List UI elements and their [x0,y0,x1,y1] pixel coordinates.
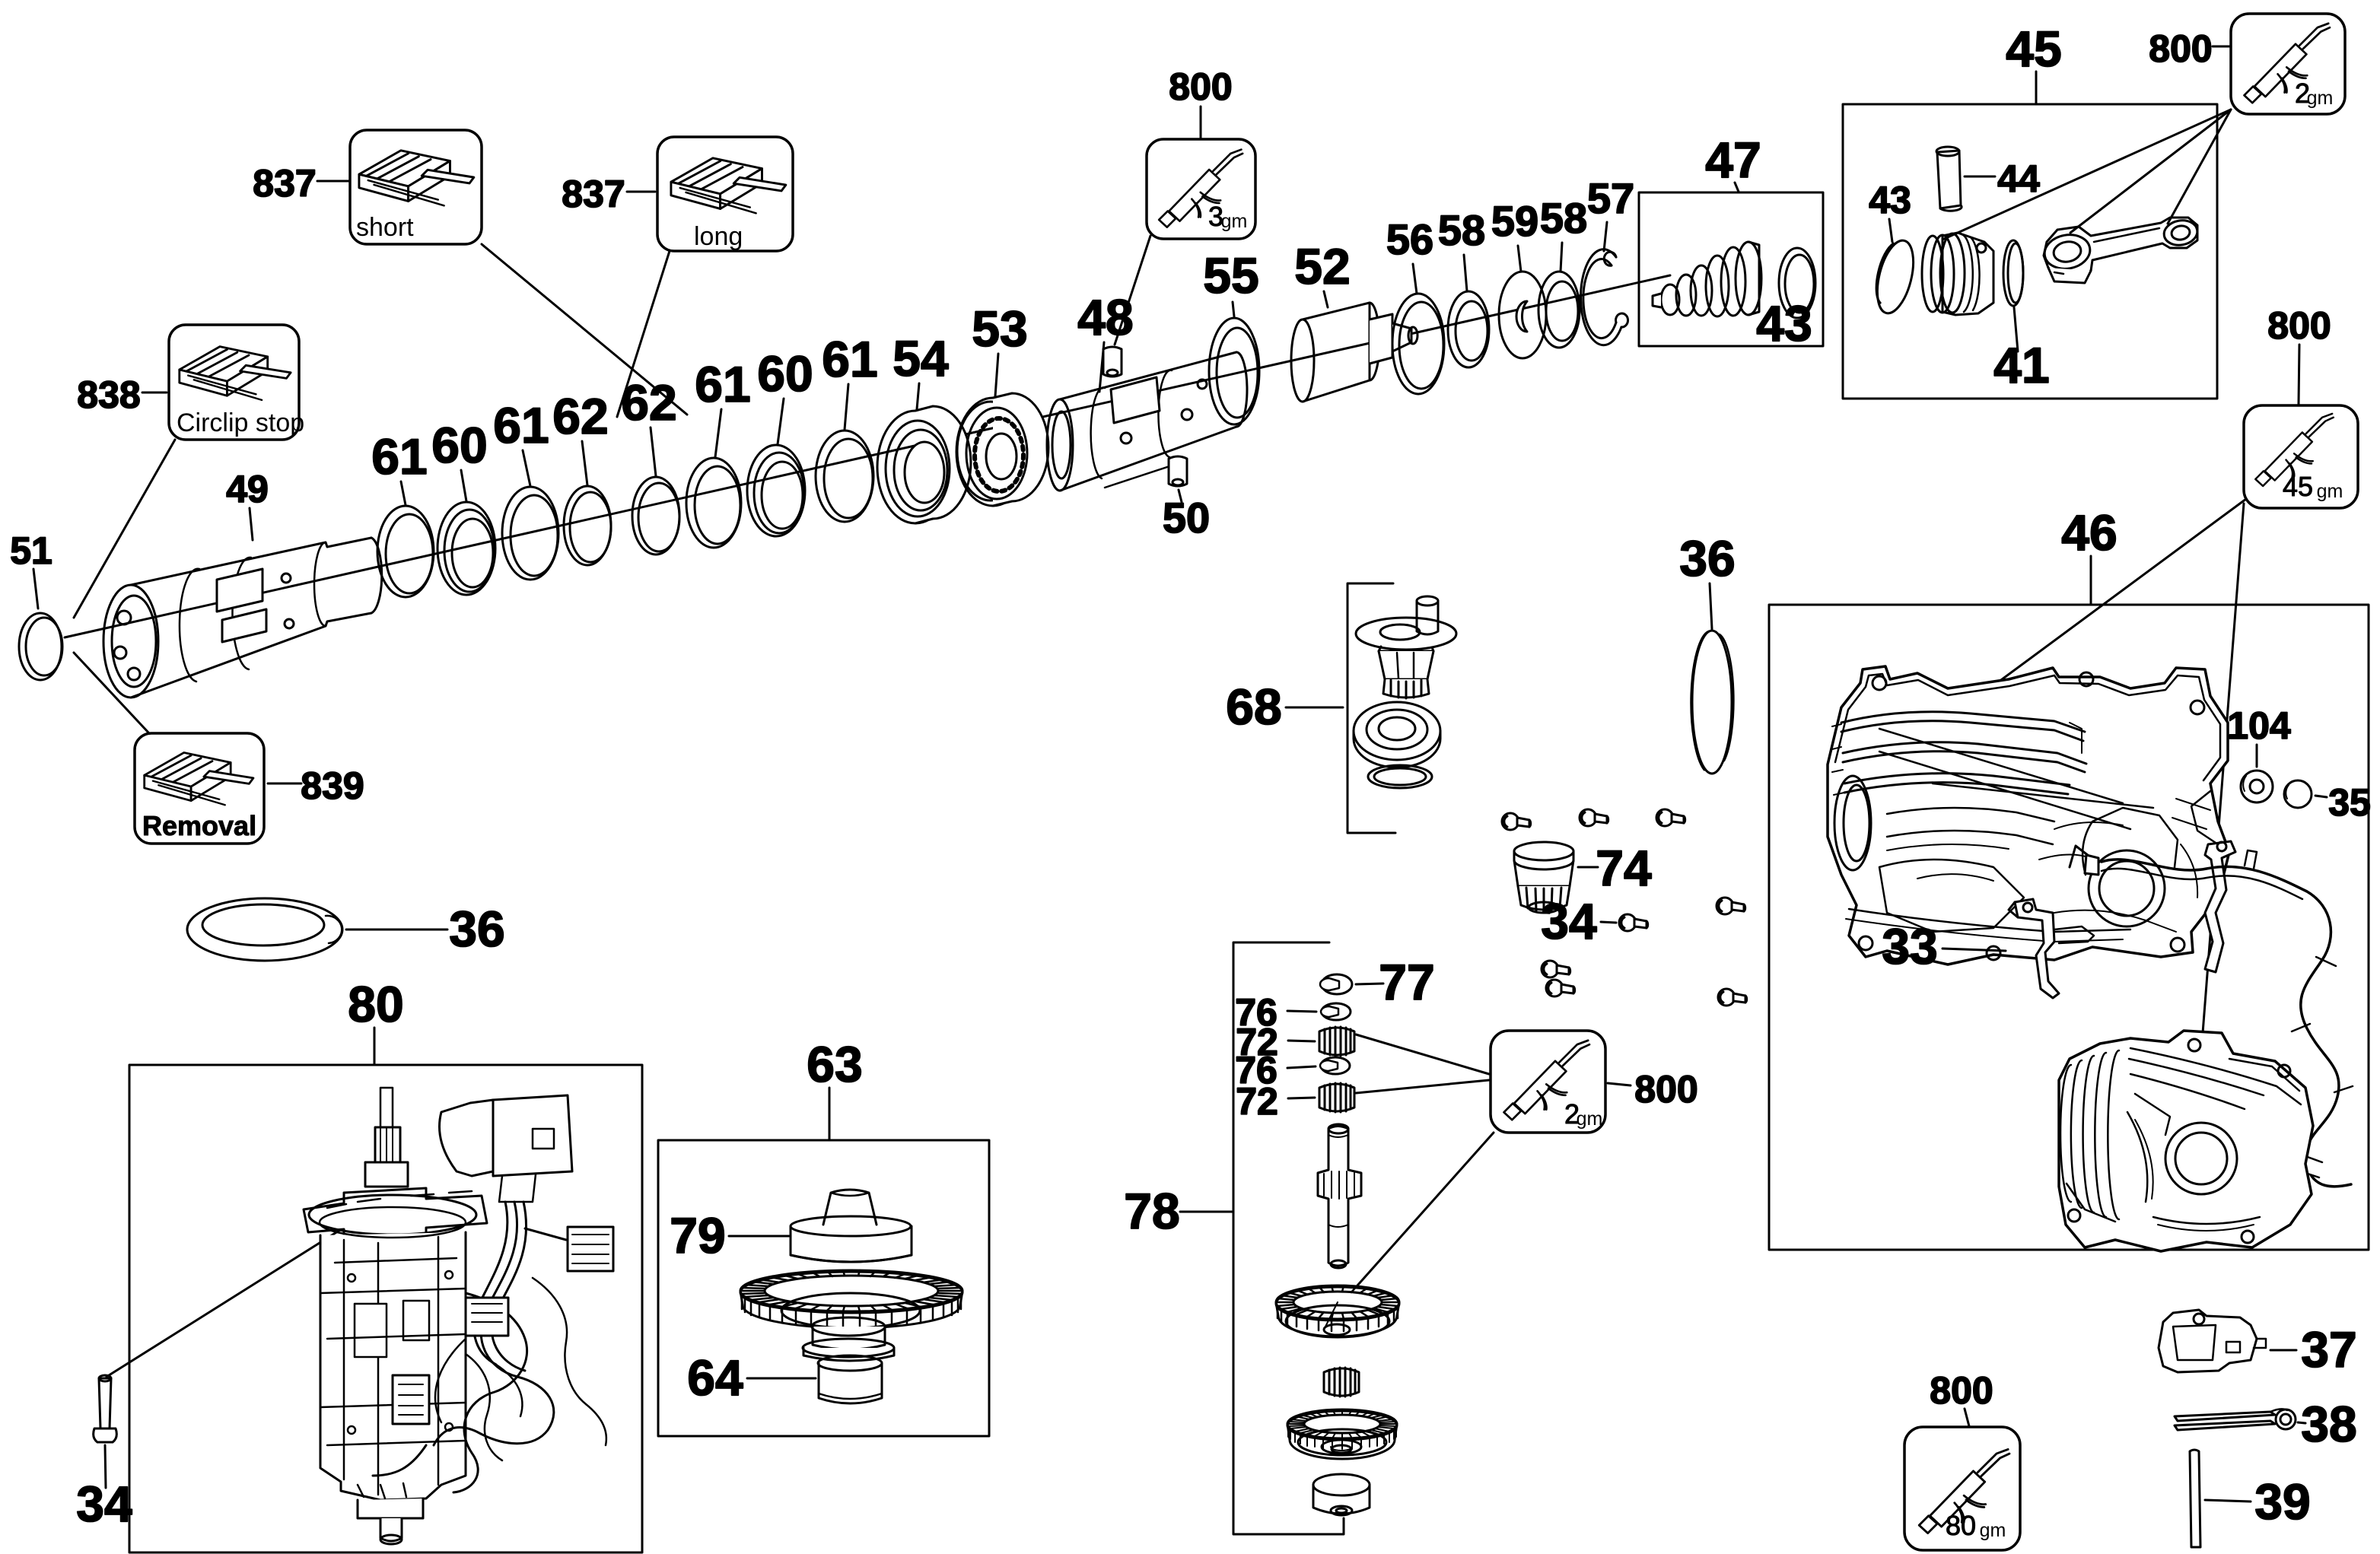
svg-text:52: 52 [1294,238,1350,294]
svg-text:60: 60 [757,345,813,402]
svg-text:gm: gm [1980,1520,2006,1541]
svg-text:838: 838 [77,373,140,416]
svg-text:long: long [694,222,743,251]
svg-text:74: 74 [1596,840,1652,896]
svg-text:48: 48 [1077,289,1133,345]
svg-text:104: 104 [2227,704,2291,747]
svg-text:45: 45 [2006,21,2061,77]
svg-text:44: 44 [1997,157,2040,200]
svg-text:37: 37 [2301,1321,2356,1378]
svg-text:837: 837 [562,173,625,215]
svg-text:800: 800 [1634,1068,1697,1111]
svg-text:60: 60 [431,417,487,473]
svg-text:47: 47 [1705,132,1761,188]
svg-text:55: 55 [1203,247,1258,303]
svg-text:837: 837 [253,162,316,205]
svg-text:43: 43 [1756,295,1812,351]
svg-text:Circlip stop: Circlip stop [177,408,304,437]
svg-text:50: 50 [1163,494,1210,542]
svg-text:64: 64 [687,1349,743,1406]
svg-text:56: 56 [1386,215,1433,263]
svg-text:800: 800 [1169,65,1232,108]
svg-text:45: 45 [2283,471,2313,502]
svg-text:38: 38 [2301,1396,2356,1452]
svg-text:34: 34 [1541,893,1597,949]
svg-text:63: 63 [807,1036,862,1092]
svg-text:72: 72 [1236,1080,1278,1123]
svg-text:58: 58 [1438,206,1485,254]
svg-text:gm: gm [1577,1108,1603,1130]
svg-text:Removal: Removal [142,810,256,841]
svg-text:gm: gm [1221,211,1248,232]
svg-text:58: 58 [1540,194,1587,242]
svg-text:57: 57 [1587,174,1634,222]
svg-text:800: 800 [2267,304,2331,347]
svg-text:46: 46 [2061,504,2117,561]
svg-text:gm: gm [2307,87,2334,109]
svg-text:61: 61 [493,397,549,453]
svg-text:43: 43 [1869,179,1911,221]
svg-text:39: 39 [2254,1473,2310,1530]
svg-text:79: 79 [670,1207,725,1263]
svg-text:68: 68 [1226,678,1281,735]
svg-text:61: 61 [822,331,877,387]
svg-text:80: 80 [1946,1510,1976,1541]
svg-text:80: 80 [348,976,403,1032]
svg-text:36: 36 [449,901,504,957]
svg-text:800: 800 [2149,27,2212,70]
svg-text:34: 34 [76,1476,132,1532]
svg-text:62: 62 [552,388,608,444]
svg-text:61: 61 [371,428,427,485]
svg-text:49: 49 [226,468,269,510]
svg-text:78: 78 [1124,1183,1179,1239]
svg-text:33: 33 [1882,918,1937,974]
svg-text:51: 51 [10,529,52,572]
svg-text:53: 53 [972,300,1027,357]
svg-text:61: 61 [695,356,750,412]
svg-text:gm: gm [2317,481,2343,502]
svg-text:36: 36 [1679,530,1735,586]
svg-text:41: 41 [1993,337,2049,393]
svg-text:59: 59 [1491,197,1538,245]
svg-text:short: short [356,213,414,242]
svg-text:839: 839 [301,764,364,807]
svg-text:800: 800 [1930,1369,1993,1412]
svg-text:62: 62 [621,374,676,431]
svg-text:77: 77 [1379,954,1434,1010]
svg-text:35: 35 [2328,781,2371,824]
svg-text:54: 54 [892,330,949,386]
